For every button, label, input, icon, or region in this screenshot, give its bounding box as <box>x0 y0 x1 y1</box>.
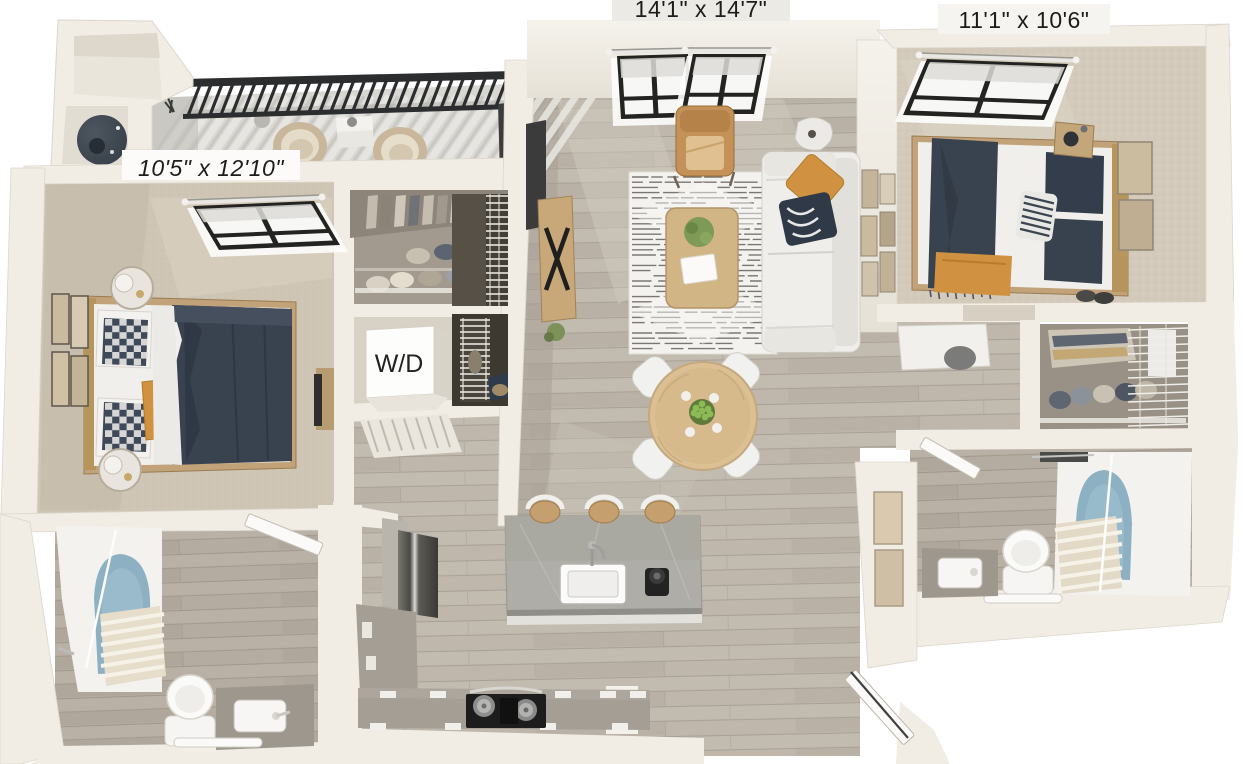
svg-text:14'1" x 14'7": 14'1" x 14'7" <box>635 0 768 22</box>
svg-text:10'5" x 12'10": 10'5" x 12'10" <box>138 155 285 181</box>
svg-text:11'1" x 10'6": 11'1" x 10'6" <box>959 7 1090 33</box>
svg-text:W/D: W/D <box>375 350 424 378</box>
